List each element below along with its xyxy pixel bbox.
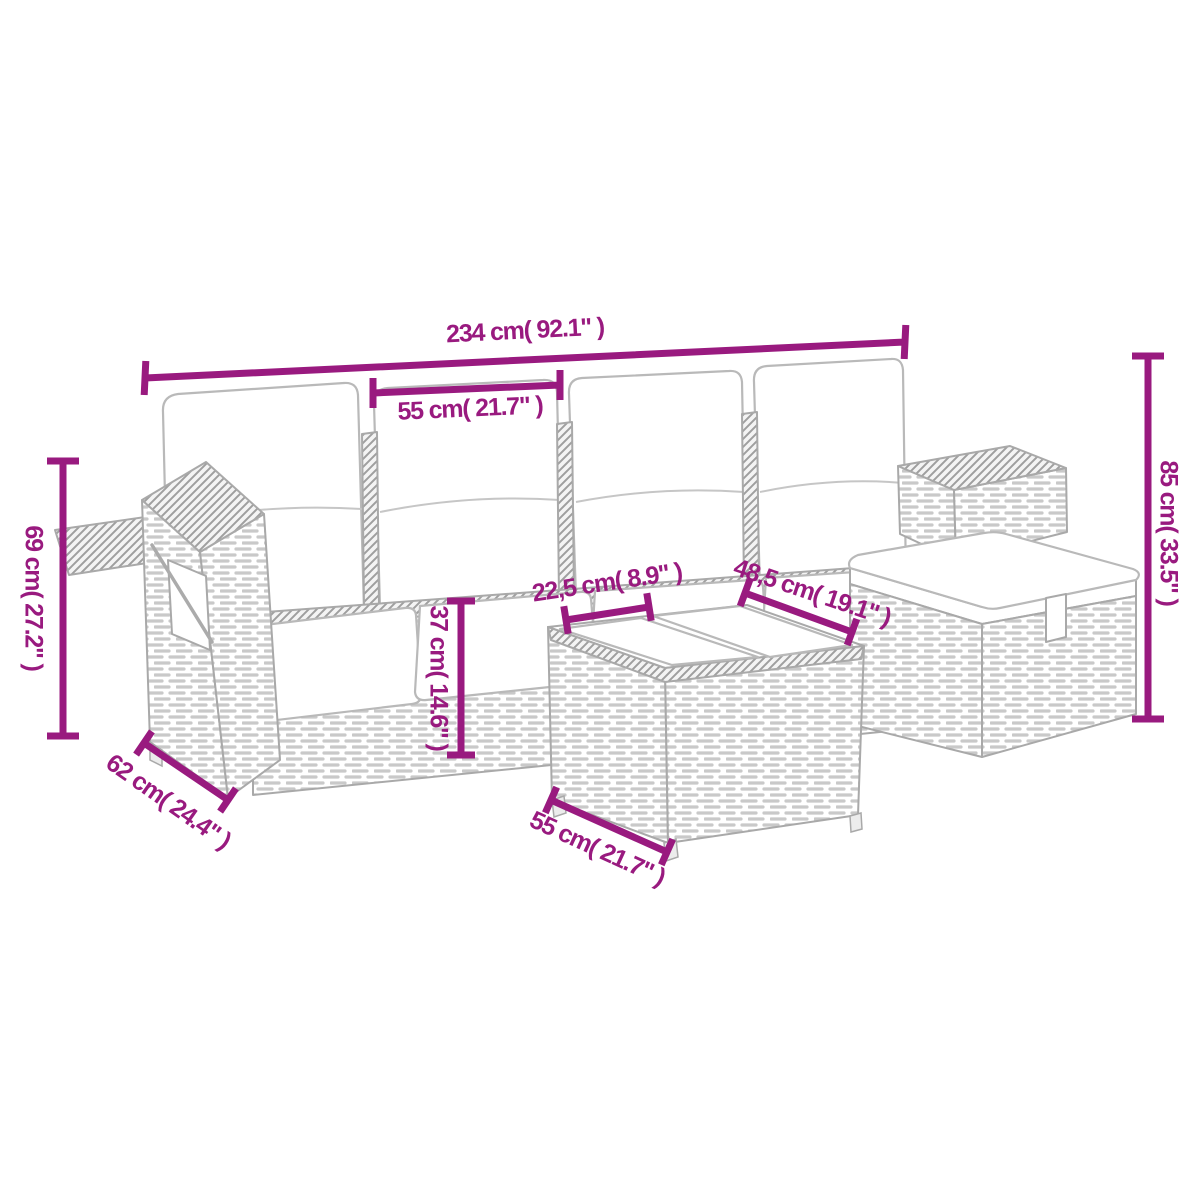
dimension-line-left-height <box>47 461 79 736</box>
product-dimension-diagram: 234 cm( 92.1" ) 55 cm( 21.7" ) 85 cm( 33… <box>0 0 1200 1200</box>
ottoman-handle <box>1046 594 1066 642</box>
table-foot-right <box>850 813 862 832</box>
backrest-strap-1 <box>362 432 379 606</box>
backrest-strap-2 <box>557 422 574 598</box>
dimension-label-right-height: 85 cm( 33.5" ) <box>1154 460 1183 605</box>
furniture-line-art <box>0 0 1200 1200</box>
sofa-set-drawing <box>55 359 1139 861</box>
dimension-label-left-height: 69 cm( 27.2" ) <box>19 525 48 670</box>
dimension-label-base-height: 37 cm( 14.6" ) <box>424 605 453 750</box>
